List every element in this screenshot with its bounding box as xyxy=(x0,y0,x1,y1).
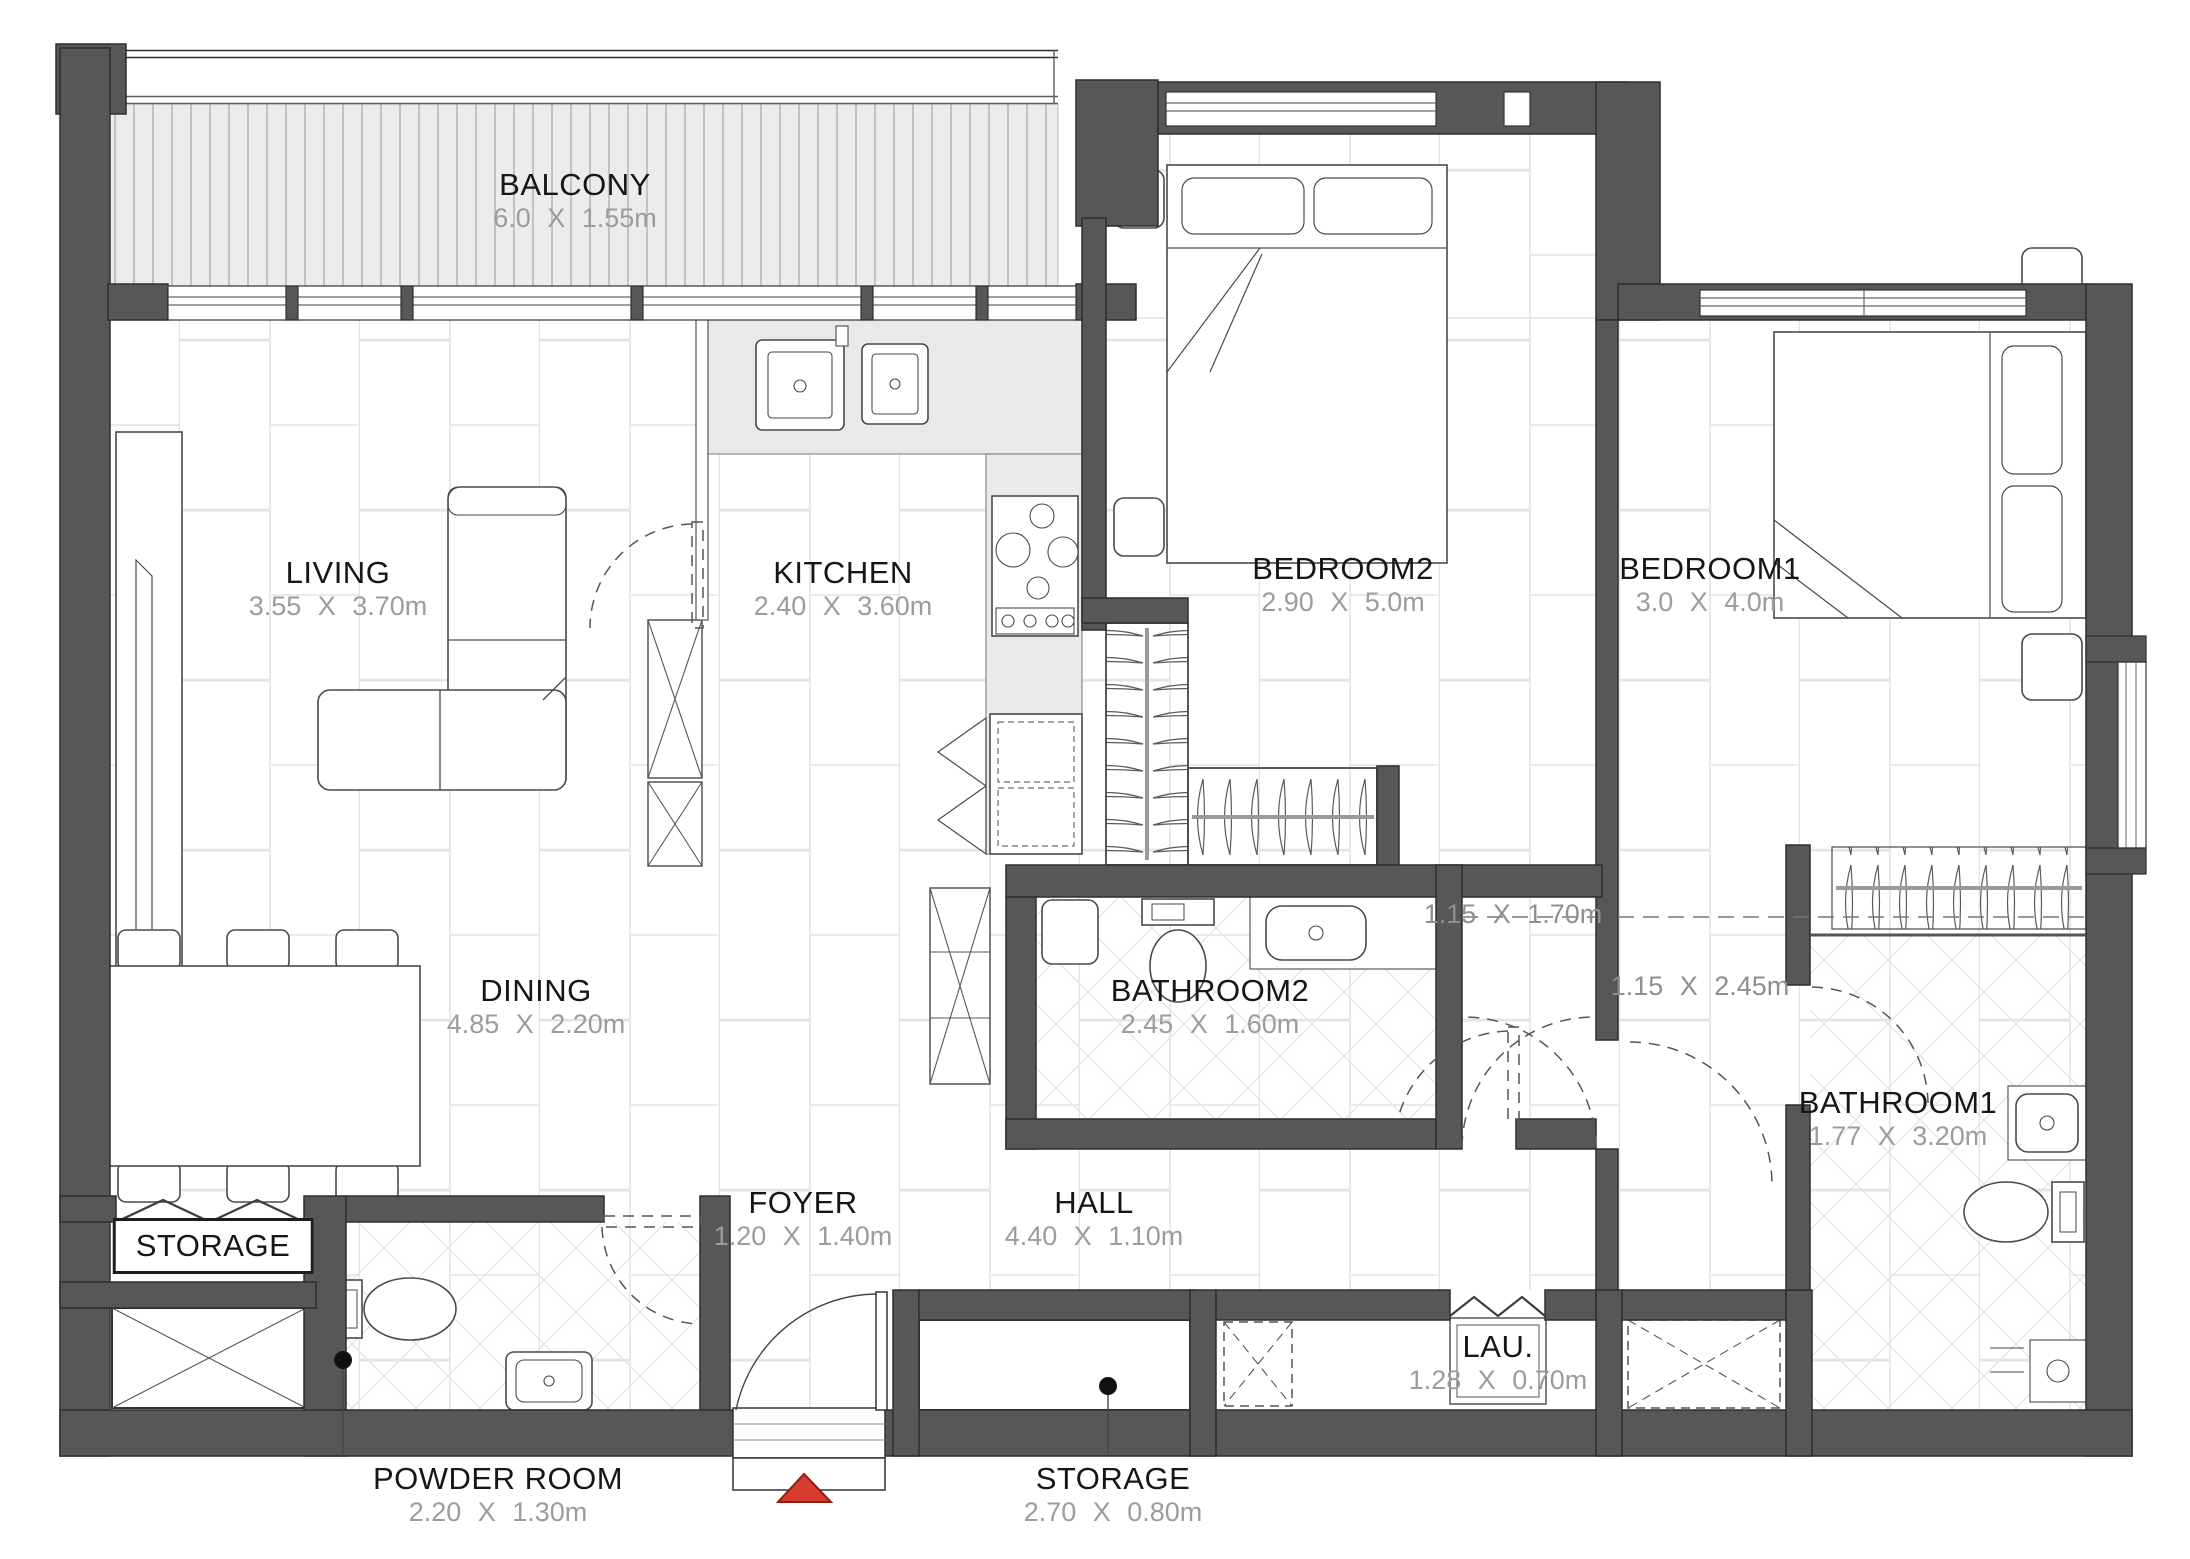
stove xyxy=(992,496,1078,636)
label-bedroom2: BEDROOM2 2.90 X 5.0m xyxy=(1252,552,1433,618)
room-dims: 2.70 X 0.80m xyxy=(1024,1496,1203,1528)
room-dims: 3.0 X 4.0m xyxy=(1619,586,1800,618)
room-name: DINING xyxy=(447,974,626,1008)
room-dims: 4.85 X 2.20m xyxy=(447,1008,626,1040)
side-window xyxy=(2118,662,2146,848)
storage-left-xbox xyxy=(112,1308,306,1408)
label-hall: HALL 4.40 X 1.10m xyxy=(1005,1186,1184,1252)
floor-plan-page: BALCONY 6.0 X 1.55m LIVING 3.55 X 3.70m … xyxy=(0,0,2190,1559)
room-dims: 1.15 X 2.45m xyxy=(1611,970,1790,1002)
label-bedroom1: BEDROOM1 3.0 X 4.0m xyxy=(1619,552,1800,618)
room-name: STORAGE xyxy=(1024,1462,1203,1496)
floor-plan-drawing xyxy=(0,0,2190,1559)
label-nook-dimension-1: 1.15 X 1.70m xyxy=(1424,898,1603,930)
closet-vertical xyxy=(1106,623,1188,865)
shaft-kitchen xyxy=(648,620,702,866)
room-dims: 1.20 X 1.40m xyxy=(714,1220,893,1252)
room-dims: 2.90 X 5.0m xyxy=(1252,586,1433,618)
room-dims: 1.15 X 1.70m xyxy=(1424,898,1603,930)
room-dims: 6.0 X 1.55m xyxy=(493,202,657,234)
room-name: BATHROOM2 xyxy=(1111,974,1310,1008)
room-name: LAU. xyxy=(1409,1330,1588,1364)
label-nook-dimension-2: 1.15 X 2.45m xyxy=(1611,970,1790,1002)
label-storage-bottom: STORAGE 2.70 X 0.80m xyxy=(1024,1462,1203,1528)
room-dims: 4.40 X 1.10m xyxy=(1005,1220,1184,1252)
room-name: KITCHEN xyxy=(754,556,933,590)
nightstand xyxy=(1114,498,1164,556)
toilet-bowl xyxy=(364,1278,456,1340)
kitchen-partition xyxy=(696,318,708,620)
room-name: BATHROOM1 xyxy=(1799,1086,1998,1120)
label-balcony: BALCONY 6.0 X 1.55m xyxy=(493,168,657,234)
room-name: BALCONY xyxy=(493,168,657,202)
room-dims: 1.77 X 3.20m xyxy=(1799,1120,1998,1152)
room-name: LIVING xyxy=(249,556,428,590)
storage-leader-dot xyxy=(1099,1377,1117,1395)
dining-table xyxy=(96,930,420,1202)
label-bathroom2: BATHROOM2 2.45 X 1.60m xyxy=(1111,974,1310,1040)
nightstand xyxy=(2022,634,2082,700)
room-dims: 2.40 X 3.60m xyxy=(754,590,933,622)
label-dining: DINING 4.85 X 2.20m xyxy=(447,974,626,1040)
label-foyer: FOYER 1.20 X 1.40m xyxy=(714,1186,893,1252)
storage-bottom-compartment xyxy=(919,1320,1190,1410)
shaft-large-dashed xyxy=(1628,1320,1780,1408)
entry-door-leaf xyxy=(876,1292,887,1410)
label-bathroom1: BATHROOM1 1.77 X 3.20m xyxy=(1799,1086,1998,1152)
room-name: BEDROOM2 xyxy=(1252,552,1433,586)
room-name: POWDER ROOM xyxy=(373,1462,623,1496)
label-living: LIVING 3.55 X 3.70m xyxy=(249,556,428,622)
toilet-bowl xyxy=(1964,1182,2048,1242)
shaft-bathroom2 xyxy=(930,888,990,1084)
label-powder-room: POWDER ROOM 2.20 X 1.30m xyxy=(373,1462,623,1528)
room-dims: 2.45 X 1.60m xyxy=(1111,1008,1310,1040)
room-name: FOYER xyxy=(714,1186,893,1220)
room-name: BEDROOM1 xyxy=(1619,552,1800,586)
label-laundry: LAU. 1.28 X 0.70m xyxy=(1409,1330,1588,1396)
label-storage-left: STORAGE xyxy=(113,1218,314,1274)
room-dims: 3.55 X 3.70m xyxy=(249,590,428,622)
room-dims: 2.20 X 1.30m xyxy=(373,1496,623,1528)
room-name: HALL xyxy=(1005,1186,1184,1220)
room-name: STORAGE xyxy=(113,1218,314,1274)
powder-leader-dot xyxy=(334,1351,352,1369)
label-kitchen: KITCHEN 2.40 X 3.60m xyxy=(754,556,933,622)
shaft-small-dashed xyxy=(1224,1322,1292,1406)
room-dims: 1.28 X 0.70m xyxy=(1409,1364,1588,1396)
balcony-railing xyxy=(124,51,1058,58)
wardrobe-bedroom2 xyxy=(1188,768,1377,865)
